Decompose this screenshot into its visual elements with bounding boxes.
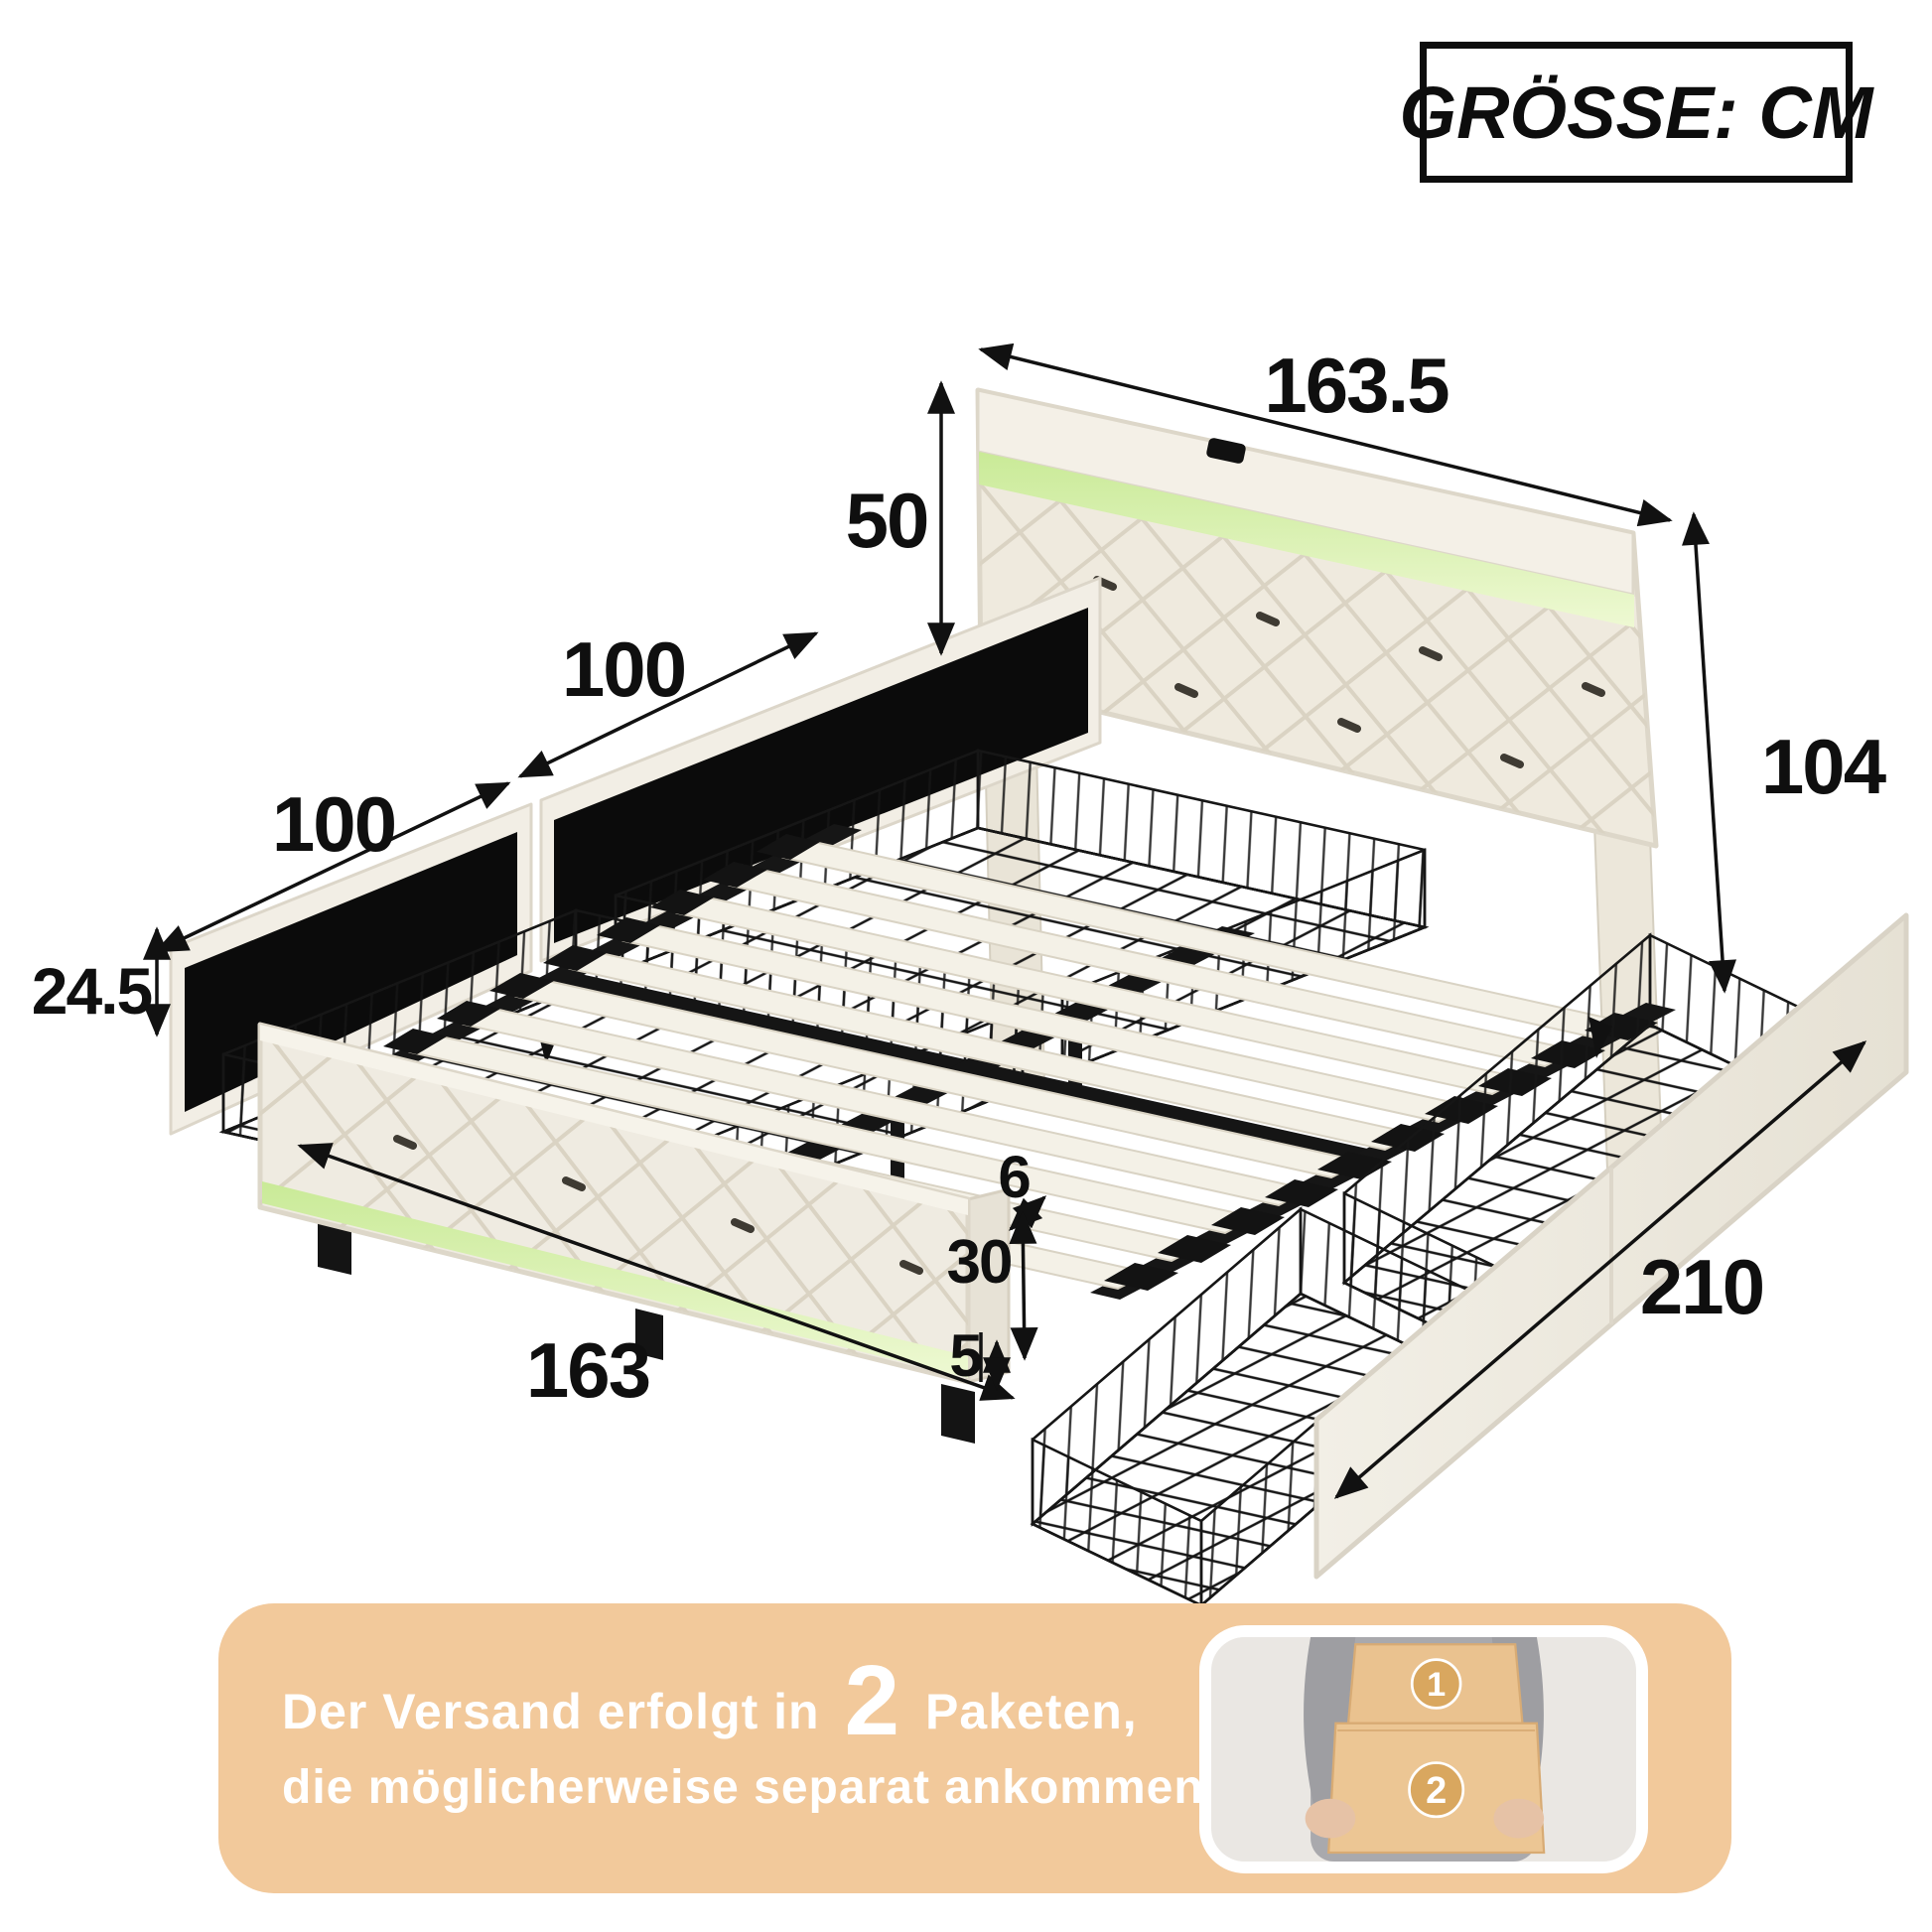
dim-footboard-height: 30 (947, 1232, 1012, 1294)
packages-photo: 1 2 (1199, 1625, 1648, 1873)
box2-number: 2 (1426, 1770, 1447, 1812)
shipping-line2: die möglicherweise separat ankommen (282, 1760, 1175, 1815)
dim-footboard-width: 163 (526, 1331, 649, 1409)
box1-number: 1 (1427, 1666, 1446, 1704)
packages-count: 2 (835, 1645, 911, 1756)
shipping-text: Der Versand erfolgt in 2 Paketen, die mö… (282, 1603, 1175, 1893)
dim-overall-height: 104 (1761, 728, 1884, 805)
left-hand (1306, 1799, 1356, 1839)
dim-headboard-width: 163.5 (1264, 346, 1448, 424)
person-with-boxes-illustration: 1 2 (1211, 1637, 1636, 1862)
size-unit-label: GRÖSSE: CM (1400, 70, 1873, 155)
dim-frame-gap: 6 (998, 1148, 1029, 1207)
product-dimension-diagram: GRÖSSE: CM 163.5 50 104 100 100 24.5 163… (0, 0, 1932, 1932)
dim-bed-length: 210 (1640, 1248, 1763, 1325)
right-hand (1494, 1799, 1545, 1839)
shipping-line1-prefix: Der Versand erfolgt in (282, 1684, 820, 1739)
dim-drawer-front-width: 100 (272, 785, 395, 863)
size-unit-box: GRÖSSE: CM (1420, 42, 1853, 183)
dim-drawer-height: 24.5 (32, 958, 151, 1024)
shipping-line1: Der Versand erfolgt in 2 Paketen, (282, 1683, 1175, 1740)
dim-headboard-height: 50 (846, 482, 928, 559)
shipping-line1-suffix: Paketen, (925, 1684, 1138, 1739)
dim-drawer-rear-width: 100 (562, 630, 685, 708)
shipping-banner: Der Versand erfolgt in 2 Paketen, die mö… (218, 1603, 1731, 1893)
dim-leg-height: 5 (949, 1326, 980, 1386)
